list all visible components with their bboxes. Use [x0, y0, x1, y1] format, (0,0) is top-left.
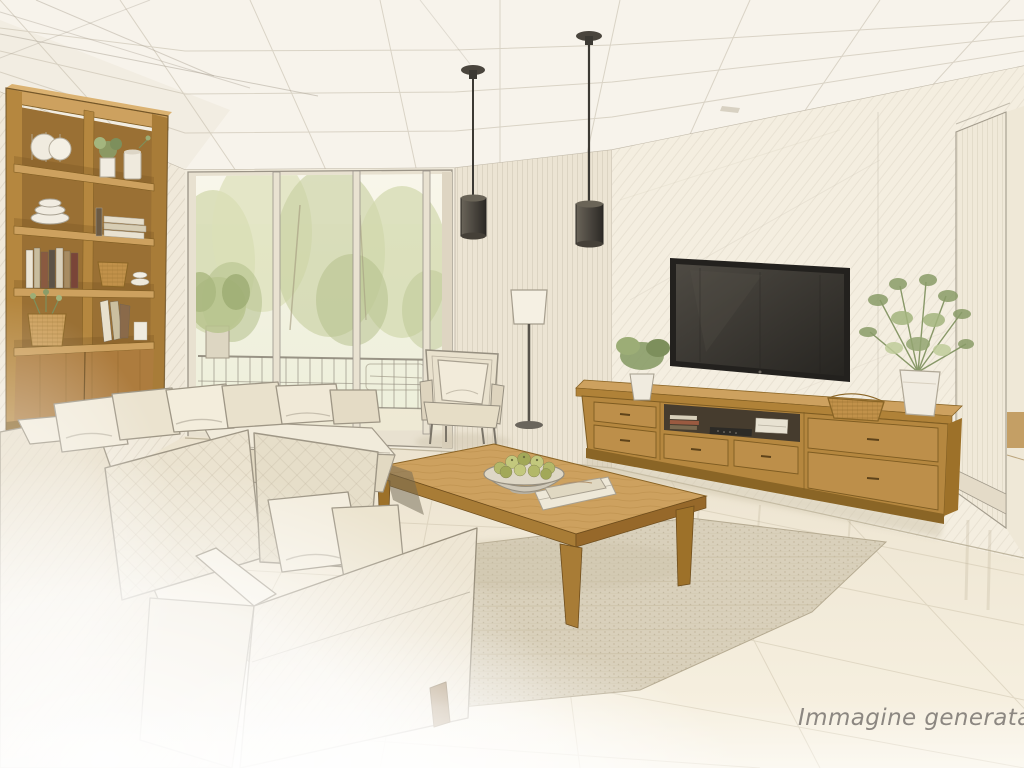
armchair-pillow	[438, 360, 488, 404]
doorway	[956, 103, 1024, 556]
armchair	[415, 350, 511, 451]
interior-sketch-image: Immagine generata con	[0, 0, 1024, 768]
tv-logo	[759, 371, 762, 374]
living-room-sketch	[0, 0, 1024, 768]
next-room-furniture	[1007, 412, 1024, 448]
watermark-text: Immagine generata con	[798, 705, 1024, 731]
tv	[670, 258, 850, 382]
